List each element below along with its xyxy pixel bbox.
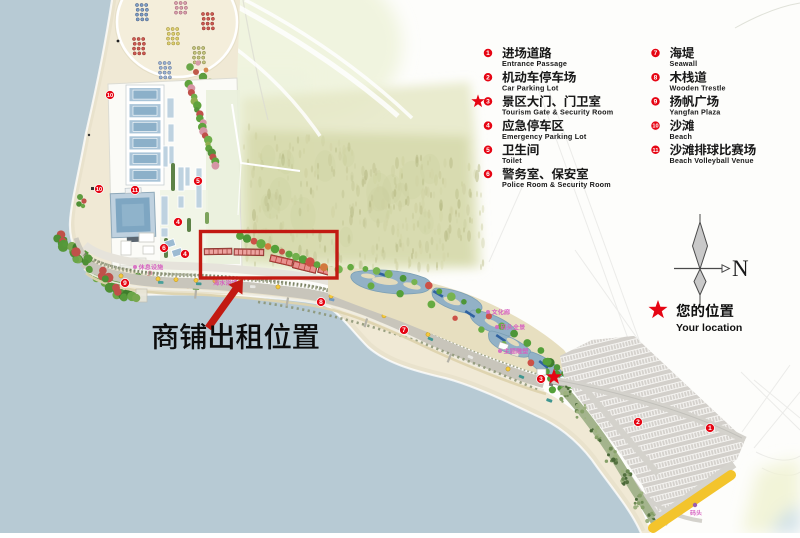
svg-text:N: N	[732, 256, 749, 281]
svg-text:2: 2	[636, 419, 640, 426]
svg-text:Your location: Your location	[676, 322, 742, 334]
svg-text:10: 10	[96, 187, 102, 193]
svg-text:3: 3	[539, 376, 543, 383]
svg-text:3: 3	[486, 99, 490, 106]
svg-text:9: 9	[654, 99, 658, 106]
svg-text:6: 6	[486, 171, 490, 178]
svg-text:Toilet: Toilet	[502, 156, 522, 165]
svg-text:Wooden Trestle: Wooden Trestle	[670, 83, 726, 92]
svg-text:Seawall: Seawall	[670, 59, 698, 68]
svg-text:4: 4	[176, 219, 180, 226]
svg-text:Yangfan Plaza: Yangfan Plaza	[670, 108, 722, 117]
svg-text:10: 10	[652, 124, 658, 130]
svg-text:11: 11	[653, 148, 659, 154]
svg-text:Emergency Parking Lot: Emergency Parking Lot	[502, 132, 587, 141]
svg-text:7: 7	[402, 327, 406, 334]
svg-text:11: 11	[132, 188, 138, 194]
svg-text:1: 1	[708, 425, 712, 432]
svg-text:4: 4	[486, 123, 490, 130]
svg-text:Tourism Gate & Security Room: Tourism Gate & Security Room	[502, 108, 613, 117]
svg-text:Beach: Beach	[670, 132, 693, 141]
svg-text:5: 5	[196, 178, 200, 185]
svg-text:2: 2	[486, 74, 490, 81]
svg-text:Beach Volleyball Venue: Beach Volleyball Venue	[670, 156, 754, 165]
svg-text:1: 1	[486, 50, 490, 57]
svg-text:4: 4	[183, 251, 187, 258]
svg-text:9: 9	[123, 280, 127, 287]
svg-text:7: 7	[654, 50, 658, 57]
svg-text:8: 8	[654, 74, 658, 81]
svg-text:8: 8	[319, 299, 323, 306]
svg-text:Entrance Passage: Entrance Passage	[502, 59, 567, 68]
svg-text:10: 10	[107, 93, 113, 99]
svg-text:5: 5	[486, 147, 490, 154]
svg-text:Car Parking Lot: Car Parking Lot	[502, 83, 559, 92]
svg-text:6: 6	[162, 245, 166, 252]
svg-text:Police Room & Security Room: Police Room & Security Room	[502, 180, 611, 189]
